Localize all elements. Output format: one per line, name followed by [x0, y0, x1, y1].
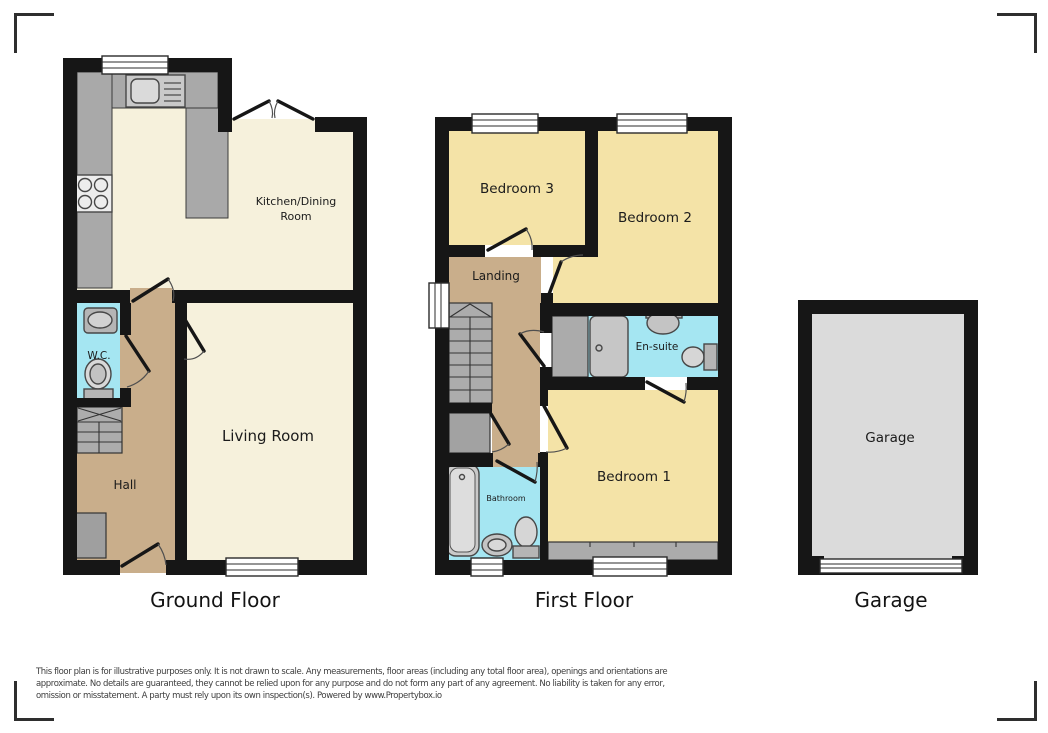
garage-plan: Garage — [798, 300, 978, 575]
disclaimer-line-1: This floor plan is for illustrative purp… — [36, 666, 796, 678]
over-stairs-cupboard — [552, 316, 588, 377]
garage-room-label: Garage — [865, 430, 914, 446]
ground-floor-title: Ground Floor — [150, 588, 280, 612]
disclaimer-line-2: approximate. No details are guaranteed, … — [36, 678, 796, 690]
shower-icon — [590, 316, 628, 377]
bedroom1-area — [548, 390, 718, 542]
kitchen-sink-icon — [126, 75, 185, 107]
kitchen-dining-label-line2: Room — [280, 210, 311, 223]
disclaimer-text: This floor plan is for illustrative purp… — [36, 666, 796, 703]
garage-door — [812, 556, 964, 573]
wc-label: W.C. — [87, 350, 110, 362]
patio-french-doors — [234, 101, 313, 119]
floorplan-page: Kitchen/Dining Room Living Room Hall W.C… — [0, 0, 1048, 733]
first-floor-stairs — [449, 303, 492, 403]
bedroom2-label: Bedroom 2 — [618, 210, 692, 226]
hob-icon — [76, 175, 112, 212]
first-floor-title: First Floor — [535, 588, 633, 612]
bedroom2-window — [617, 114, 687, 133]
ground-floor-stairs — [77, 407, 122, 453]
landing-corridor-area — [492, 303, 540, 455]
living-room-label: Living Room — [222, 427, 314, 445]
bedroom1-window — [593, 557, 667, 576]
wc-toilet-icon — [84, 359, 113, 400]
bedroom3-label: Bedroom 3 — [480, 181, 554, 197]
airing-cupboard — [449, 413, 490, 453]
disclaimer-line-3: omission or misstatement. A party must r… — [36, 690, 796, 702]
ensuite-label: En-suite — [636, 341, 679, 353]
bathroom-label: Bathroom — [486, 494, 526, 503]
hall-cupboard — [75, 513, 106, 558]
landing-label: Landing — [472, 269, 520, 283]
living-room-window — [226, 558, 298, 576]
hall-label: Hall — [113, 478, 136, 492]
patio-door-sill — [232, 119, 315, 132]
wc-basin-icon — [84, 308, 117, 333]
bathroom-basin-icon — [482, 534, 512, 556]
first-floor-plan: Bedroom 3 Bedroom 2 Bedroom 1 Landing En… — [429, 114, 732, 576]
ground-floor-plan: Kitchen/Dining Room Living Room Hall W.C… — [63, 56, 367, 576]
bedroom1-label: Bedroom 1 — [597, 469, 671, 485]
bathroom-window — [471, 558, 503, 576]
bedroom3-window — [472, 114, 538, 133]
floorplan-drawing: Kitchen/Dining Room Living Room Hall W.C… — [0, 0, 1048, 733]
bathroom-toilet-icon — [513, 517, 539, 558]
bath-icon — [446, 464, 479, 556]
garage-title: Garage — [854, 588, 927, 612]
bathroom-doorway — [493, 453, 538, 467]
kitchen-window — [102, 56, 168, 74]
kitchen-dining-label-line1: Kitchen/Dining — [256, 195, 337, 208]
landing-window — [429, 283, 449, 328]
